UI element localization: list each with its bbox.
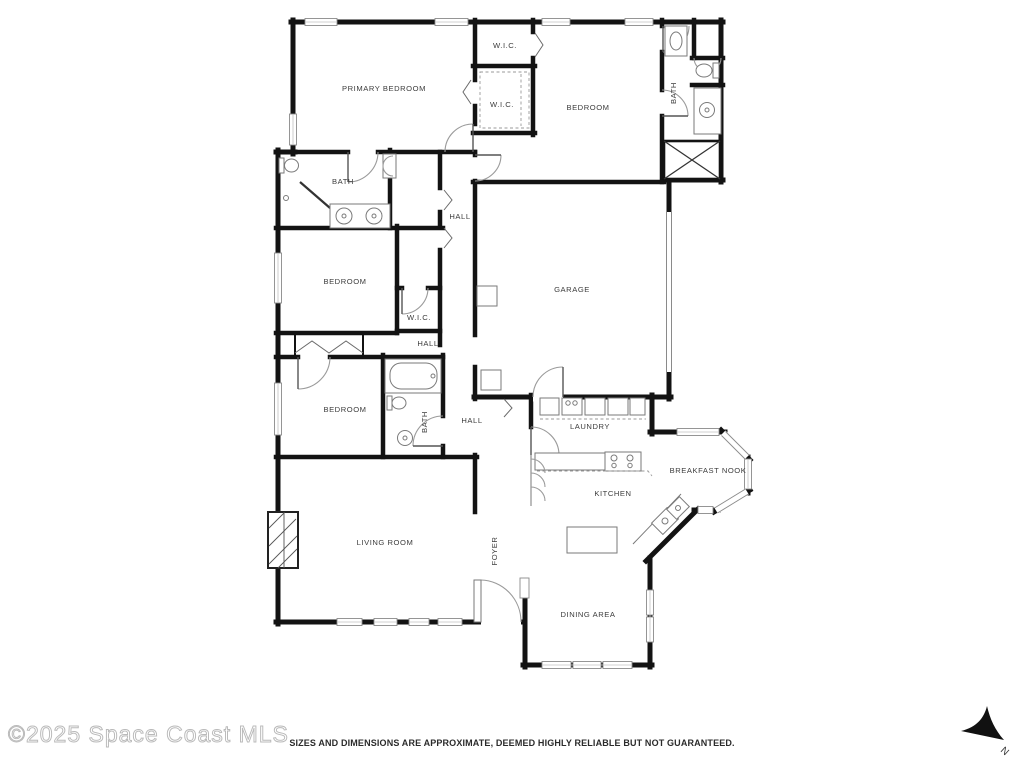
- toilet-tank: [713, 63, 719, 78]
- toilet-bowl: [285, 159, 299, 172]
- toilet-bowl: [392, 397, 406, 409]
- room-label-laundry: LAUNDRY: [570, 422, 610, 431]
- linen-closet: [383, 154, 396, 178]
- room-label-hall-lower: HALL: [461, 416, 482, 425]
- bifold-doors: [295, 341, 363, 353]
- laundry-counter: [540, 398, 559, 415]
- dryer: [585, 398, 605, 415]
- room-label-bath-primary: BATH: [332, 177, 354, 186]
- pantry-shelf: [531, 487, 545, 501]
- front-door-leaf: [474, 580, 481, 622]
- stove: [605, 452, 641, 471]
- disclaimer: SIZES AND DIMENSIONS ARE APPROXIMATE, DE…: [289, 738, 734, 748]
- north-label: N: [998, 745, 1011, 758]
- room-label-garage: GARAGE: [554, 285, 590, 294]
- doors-layer: [298, 26, 721, 622]
- opening-chevrons: [444, 33, 543, 417]
- laundry-cabinet: [630, 398, 645, 415]
- floor-plan-svg: W.I.C. PRIMARY BEDROOM W.I.C. BEDROOM BA…: [0, 0, 1024, 768]
- room-label-primary-bedroom: PRIMARY BEDROOM: [342, 84, 426, 93]
- washer: [562, 398, 582, 415]
- room-label-bedroom-lower: BEDROOM: [323, 405, 366, 414]
- north-arrow: N: [961, 706, 1011, 758]
- room-label-bedroom-top: BEDROOM: [566, 103, 609, 112]
- room-label-dining-area: DINING AREA: [561, 610, 616, 619]
- watermark: ©2025 Space Coast MLS: [8, 721, 289, 747]
- footer-layer: ©2025 Space Coast MLS SIZES AND DIMENSIO…: [8, 706, 1011, 758]
- pantry-shelf: [531, 473, 545, 487]
- shower-glass: [300, 182, 330, 208]
- toilet-tank: [279, 158, 284, 173]
- room-label-bedroom-mid: BEDROOM: [323, 277, 366, 286]
- room-label-wic-mid: W.I.C.: [490, 100, 514, 109]
- kitchen-counter: [535, 453, 605, 470]
- room-label-bath-lower: BATH: [420, 411, 429, 433]
- room-label-bath-right: BATH: [669, 82, 678, 104]
- room-label-hall-upper: HALL: [449, 212, 470, 221]
- room-label-breakfast-nook: BREAKFAST NOOK: [670, 466, 747, 475]
- interior-walls-layer: [276, 20, 723, 512]
- room-label-wic-lower: W.I.C.: [407, 313, 431, 322]
- laundry-cabinet: [608, 398, 628, 415]
- room-label-living-room: LIVING ROOM: [357, 538, 414, 547]
- toilet-bowl: [696, 64, 712, 77]
- floor-plan-page: W.I.C. PRIMARY BEDROOM W.I.C. BEDROOM BA…: [0, 0, 1024, 768]
- sink: [670, 32, 682, 50]
- wic-opening-chevron: [463, 80, 471, 104]
- toilet-tank: [387, 396, 392, 410]
- water-heater: [477, 286, 497, 306]
- room-label-kitchen: KITCHEN: [594, 489, 631, 498]
- shower-head-icon: [284, 196, 289, 201]
- room-label-foyer: FOYER: [490, 537, 499, 566]
- exterior-walls-layer: [276, 20, 750, 667]
- kitchen-island: [567, 527, 617, 553]
- room-label-hall-mid: HALL: [417, 339, 438, 348]
- north-arrow-icon: [961, 706, 1004, 740]
- hvac-unit: [481, 370, 501, 390]
- fireplace: [268, 512, 298, 568]
- room-label-wic-top: W.I.C.: [493, 41, 517, 50]
